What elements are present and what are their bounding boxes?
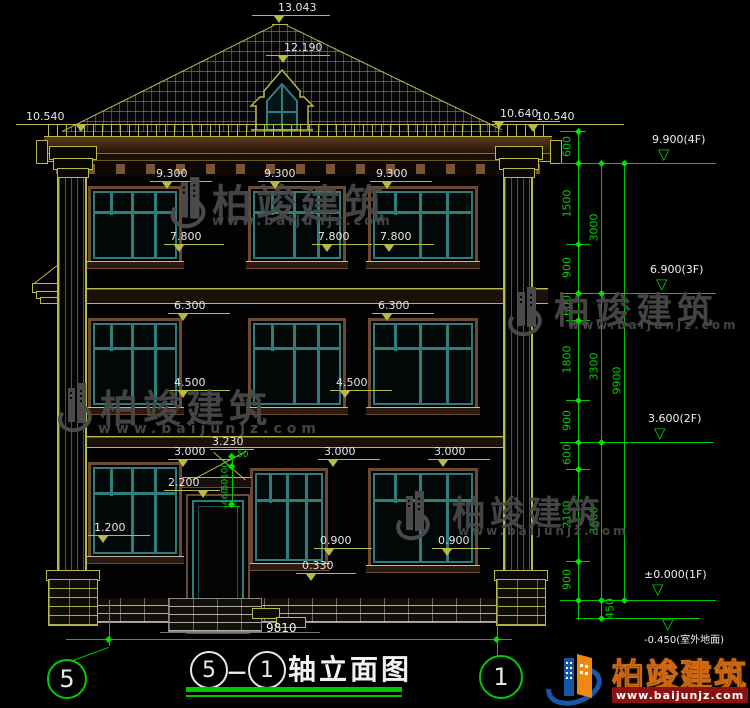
dimension-tick — [598, 160, 605, 167]
axis-bubble-1: 1 — [479, 655, 523, 699]
watermark-badge-icon — [58, 382, 92, 438]
cornice-fascia — [44, 136, 552, 162]
dim-3230-canopy: 3.230 — [210, 436, 254, 450]
watermark-url: www.baijunjz.com — [458, 524, 629, 538]
elev-ground: -0.450(室外地面) — [644, 631, 724, 646]
dimension-tick — [575, 466, 582, 473]
elevation-drawing: 13.043 12.190 10.540 10.640 10.540 9.300… — [0, 0, 750, 708]
dimension-tick — [105, 636, 112, 643]
dim-1200: 1.200 — [88, 522, 150, 536]
dim-roof-peak: 13.043 — [252, 2, 330, 16]
window-3f-left — [88, 186, 182, 264]
title-separator: － — [226, 656, 248, 688]
company-logo-icon — [544, 650, 610, 708]
window-1f-mid — [250, 468, 328, 566]
dim-7800-b: 7.800 — [312, 231, 372, 245]
dim-4500-b: 4.500 — [330, 377, 392, 391]
dim-3000-b: 3.000 — [318, 446, 380, 460]
floor-band-3f — [48, 288, 548, 304]
title-axis-b: 1 — [248, 651, 286, 689]
pedestal-left — [48, 579, 98, 626]
dimension-tick — [575, 241, 582, 248]
dimension-tick — [575, 558, 582, 565]
dim-eave-right-b: 10.540 — [524, 111, 624, 125]
dimension-tick — [621, 597, 628, 604]
pilaster-left — [57, 176, 87, 570]
capital-left — [57, 168, 89, 178]
roof-ridge — [272, 24, 288, 25]
dim-dormer: 12.190 — [266, 42, 330, 56]
dimension-tick — [493, 636, 500, 643]
dimension-tick — [621, 160, 628, 167]
dimension-tick — [575, 597, 582, 604]
title-underline-thin — [186, 695, 402, 697]
dimension-tick — [575, 439, 582, 446]
watermark-badge-icon — [170, 176, 206, 234]
dim-6300-a: 6.300 — [168, 300, 230, 314]
watermark-url: www.baijunjz.com — [212, 214, 393, 229]
capital-right — [503, 168, 535, 178]
drawing-title: 轴立面图 — [288, 648, 412, 688]
axis5-leader — [70, 647, 109, 662]
elev-1f-marker: ▽ — [652, 583, 664, 596]
dim-2200-door: 2.200 — [164, 477, 220, 491]
dim-7800-c: 7.800 — [374, 231, 434, 245]
dimension-tick — [575, 397, 582, 404]
elev-2f-marker: ▽ — [654, 427, 666, 440]
dimension-tick — [598, 439, 605, 446]
elev-4f-marker: ▽ — [658, 148, 670, 161]
dim-3000-c: 3.000 — [428, 446, 490, 460]
window-2f-right — [368, 318, 478, 410]
dimension-tick — [575, 128, 582, 135]
fascia-end-left — [36, 140, 48, 164]
watermark-badge-icon — [396, 490, 430, 546]
dim-total-width: 9810 — [266, 621, 297, 635]
title-underline — [186, 687, 402, 692]
dim-0900-mid: 0.900 — [314, 535, 372, 549]
watermark-url: www.baijunjz.com — [98, 421, 321, 437]
company-logo-url: www.baijunjz.com — [612, 687, 748, 703]
pedestal-right — [496, 579, 546, 626]
dimension-tick — [575, 160, 582, 167]
watermark-badge-icon — [508, 286, 542, 342]
dim-eave-left: 10.540 — [16, 111, 92, 125]
dim-6300-b: 6.300 — [372, 300, 434, 314]
axis-bubble-5: 5 — [47, 659, 87, 699]
axis1-line — [497, 592, 498, 655]
door-steps-platform — [168, 598, 262, 632]
title-axis-a: 5 — [190, 651, 228, 689]
dim-0330-porch: 0.330 — [296, 560, 356, 574]
elev-ground-marker: ▽ — [662, 618, 674, 631]
watermark-url: www.baijunjz.com — [568, 318, 739, 332]
bottom-dim-line — [66, 639, 512, 640]
door-mini-50: 50 — [237, 450, 248, 460]
